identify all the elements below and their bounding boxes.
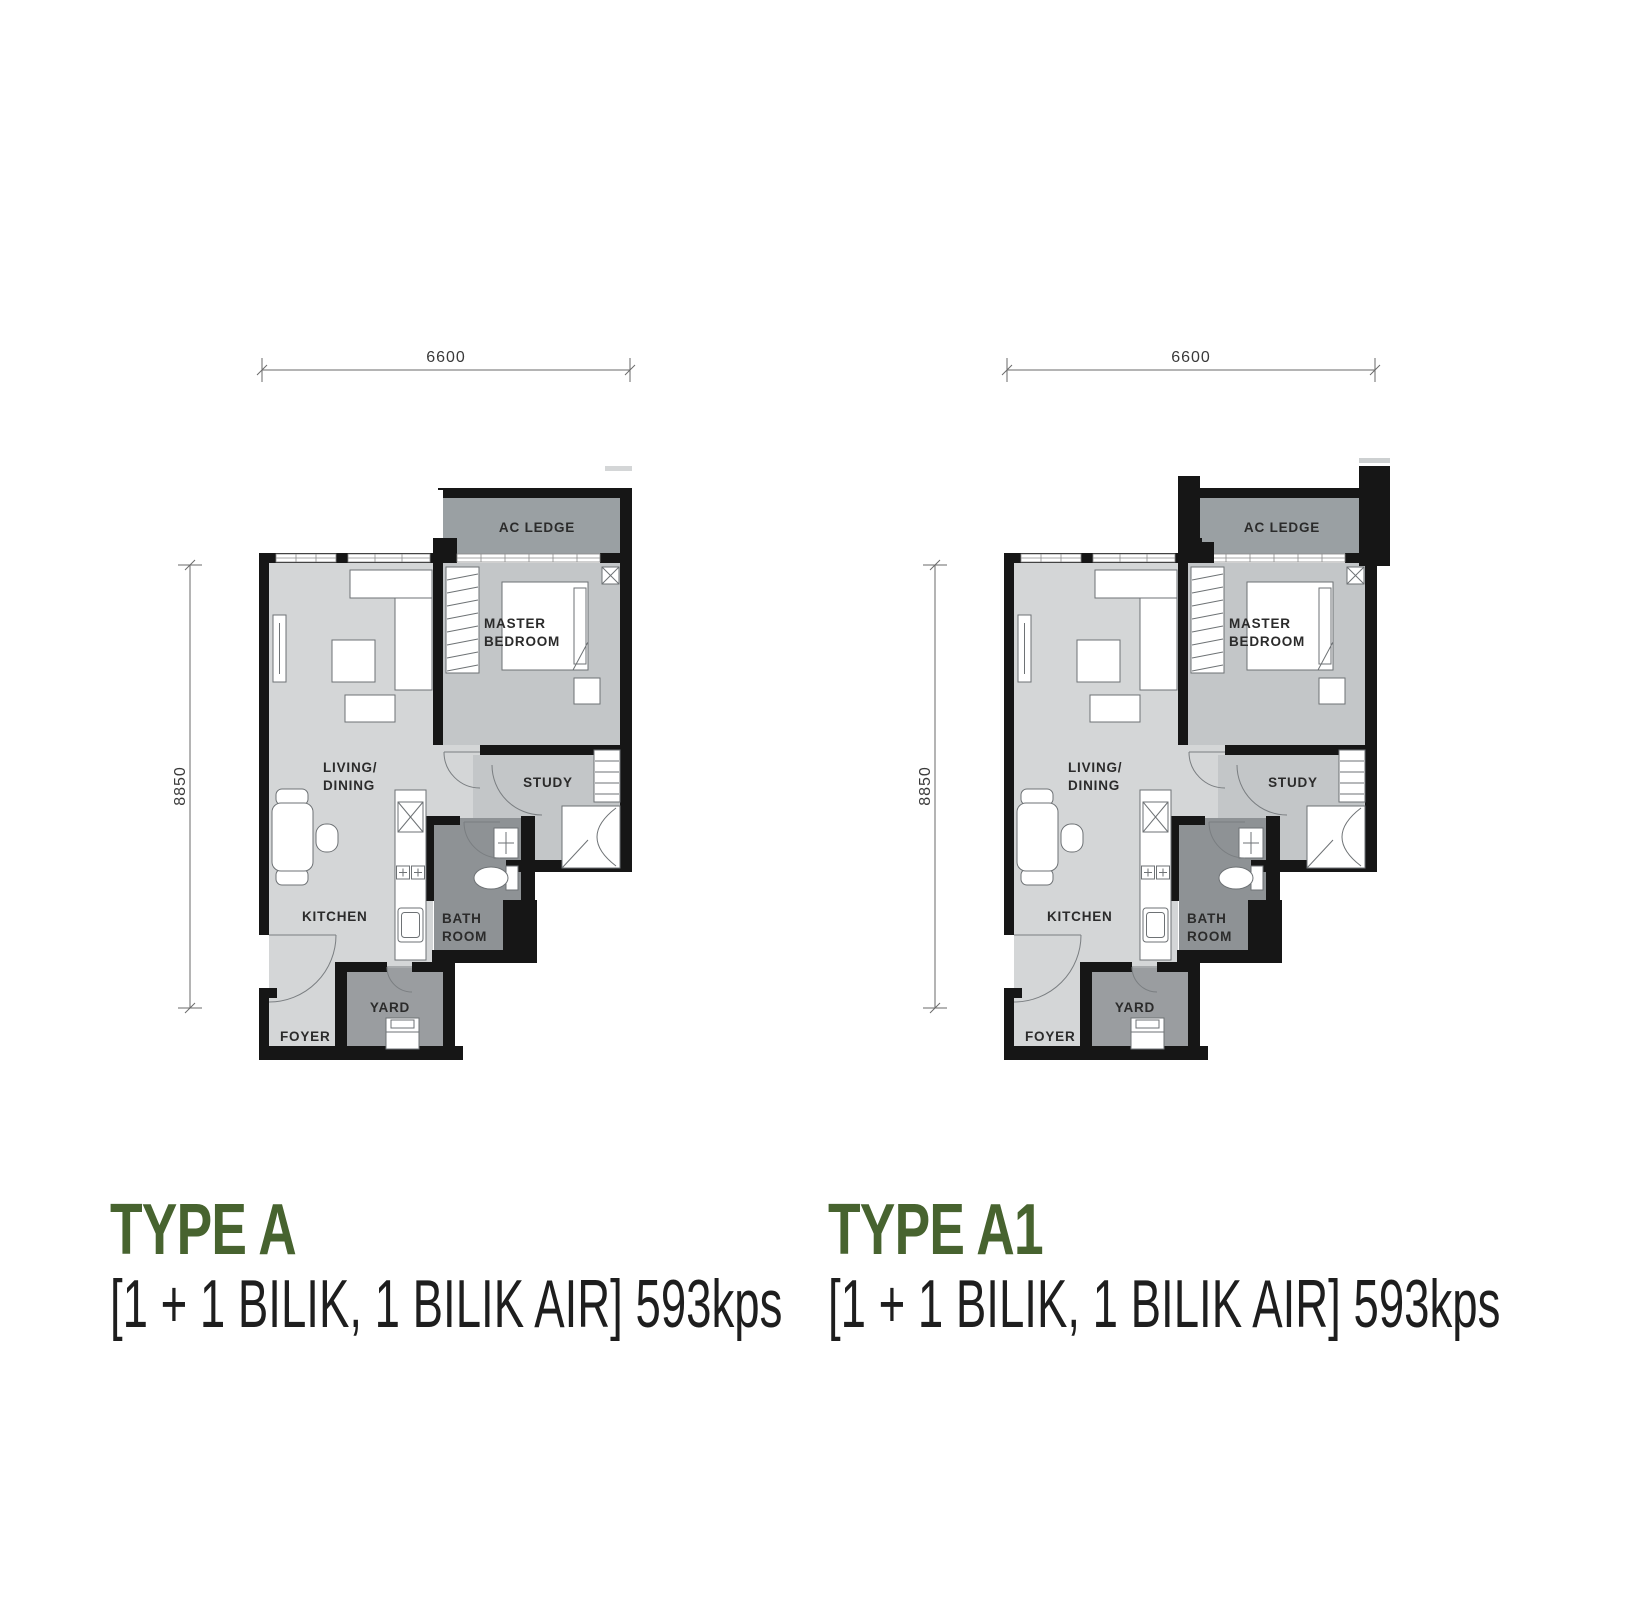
label-living-2: DINING (323, 778, 375, 793)
label-kitchen: KITCHEN (1047, 909, 1113, 924)
plan-title: TYPE A (110, 1194, 853, 1266)
label-bathroom-1: BATH (1187, 911, 1227, 926)
dimension-height-label: 8850 (917, 766, 934, 806)
label-living-2: DINING (1068, 778, 1120, 793)
label-bathroom-1: BATH (442, 911, 482, 926)
label-living-1: LIVING/ (323, 760, 377, 775)
label-master-bedroom-2: BEDROOM (484, 634, 560, 649)
label-master-bedroom-1: MASTER (1229, 616, 1291, 631)
dimension-height-label: 8850 (172, 766, 189, 806)
label-yard: YARD (370, 1000, 410, 1015)
floor-plan-type-a: 6600 8850 AC LEDGE MASTER BEDROOM LIVING… (150, 320, 670, 1080)
label-study: STUDY (1268, 775, 1318, 790)
plan-figure-type-a1: 6600 8850 AC LEDGE MASTER BEDROOM LIVING… (895, 320, 1415, 1080)
dimension-width-label: 6600 (426, 349, 466, 366)
plan-figure-type-a: 6600 8850 AC LEDGE MASTER BEDROOM LIVING… (150, 320, 670, 1080)
floor-plan-type-a1: 6600 8850 AC LEDGE MASTER BEDROOM LIVING… (895, 320, 1415, 1080)
plan-spec: [1 + 1 BILIK, 1 BILIK AIR] 593kps (828, 1270, 1500, 1338)
label-master-bedroom-1: MASTER (484, 616, 546, 631)
plan-title: TYPE A1 (828, 1194, 1571, 1266)
label-master-bedroom-2: BEDROOM (1229, 634, 1305, 649)
label-foyer: FOYER (1025, 1029, 1076, 1044)
label-ac-ledge: AC LEDGE (499, 520, 575, 535)
label-study: STUDY (523, 775, 573, 790)
label-living-1: LIVING/ (1068, 760, 1122, 775)
floor-plan-sheet: 6600 8850 AC LEDGE MASTER BEDROOM LIVING… (0, 0, 1650, 1618)
plan-spec: [1 + 1 BILIK, 1 BILIK AIR] 593kps (110, 1270, 782, 1338)
label-yard: YARD (1115, 1000, 1155, 1015)
caption-type-a1: TYPE A1 [1 + 1 BILIK, 1 BILIK AIR] 593kp… (828, 1194, 1650, 1338)
label-bathroom-2: ROOM (442, 929, 487, 944)
label-bathroom-2: ROOM (1187, 929, 1232, 944)
dimension-width-label: 6600 (1171, 349, 1211, 366)
label-ac-ledge: AC LEDGE (1244, 520, 1320, 535)
label-foyer: FOYER (280, 1029, 331, 1044)
label-kitchen: KITCHEN (302, 909, 368, 924)
